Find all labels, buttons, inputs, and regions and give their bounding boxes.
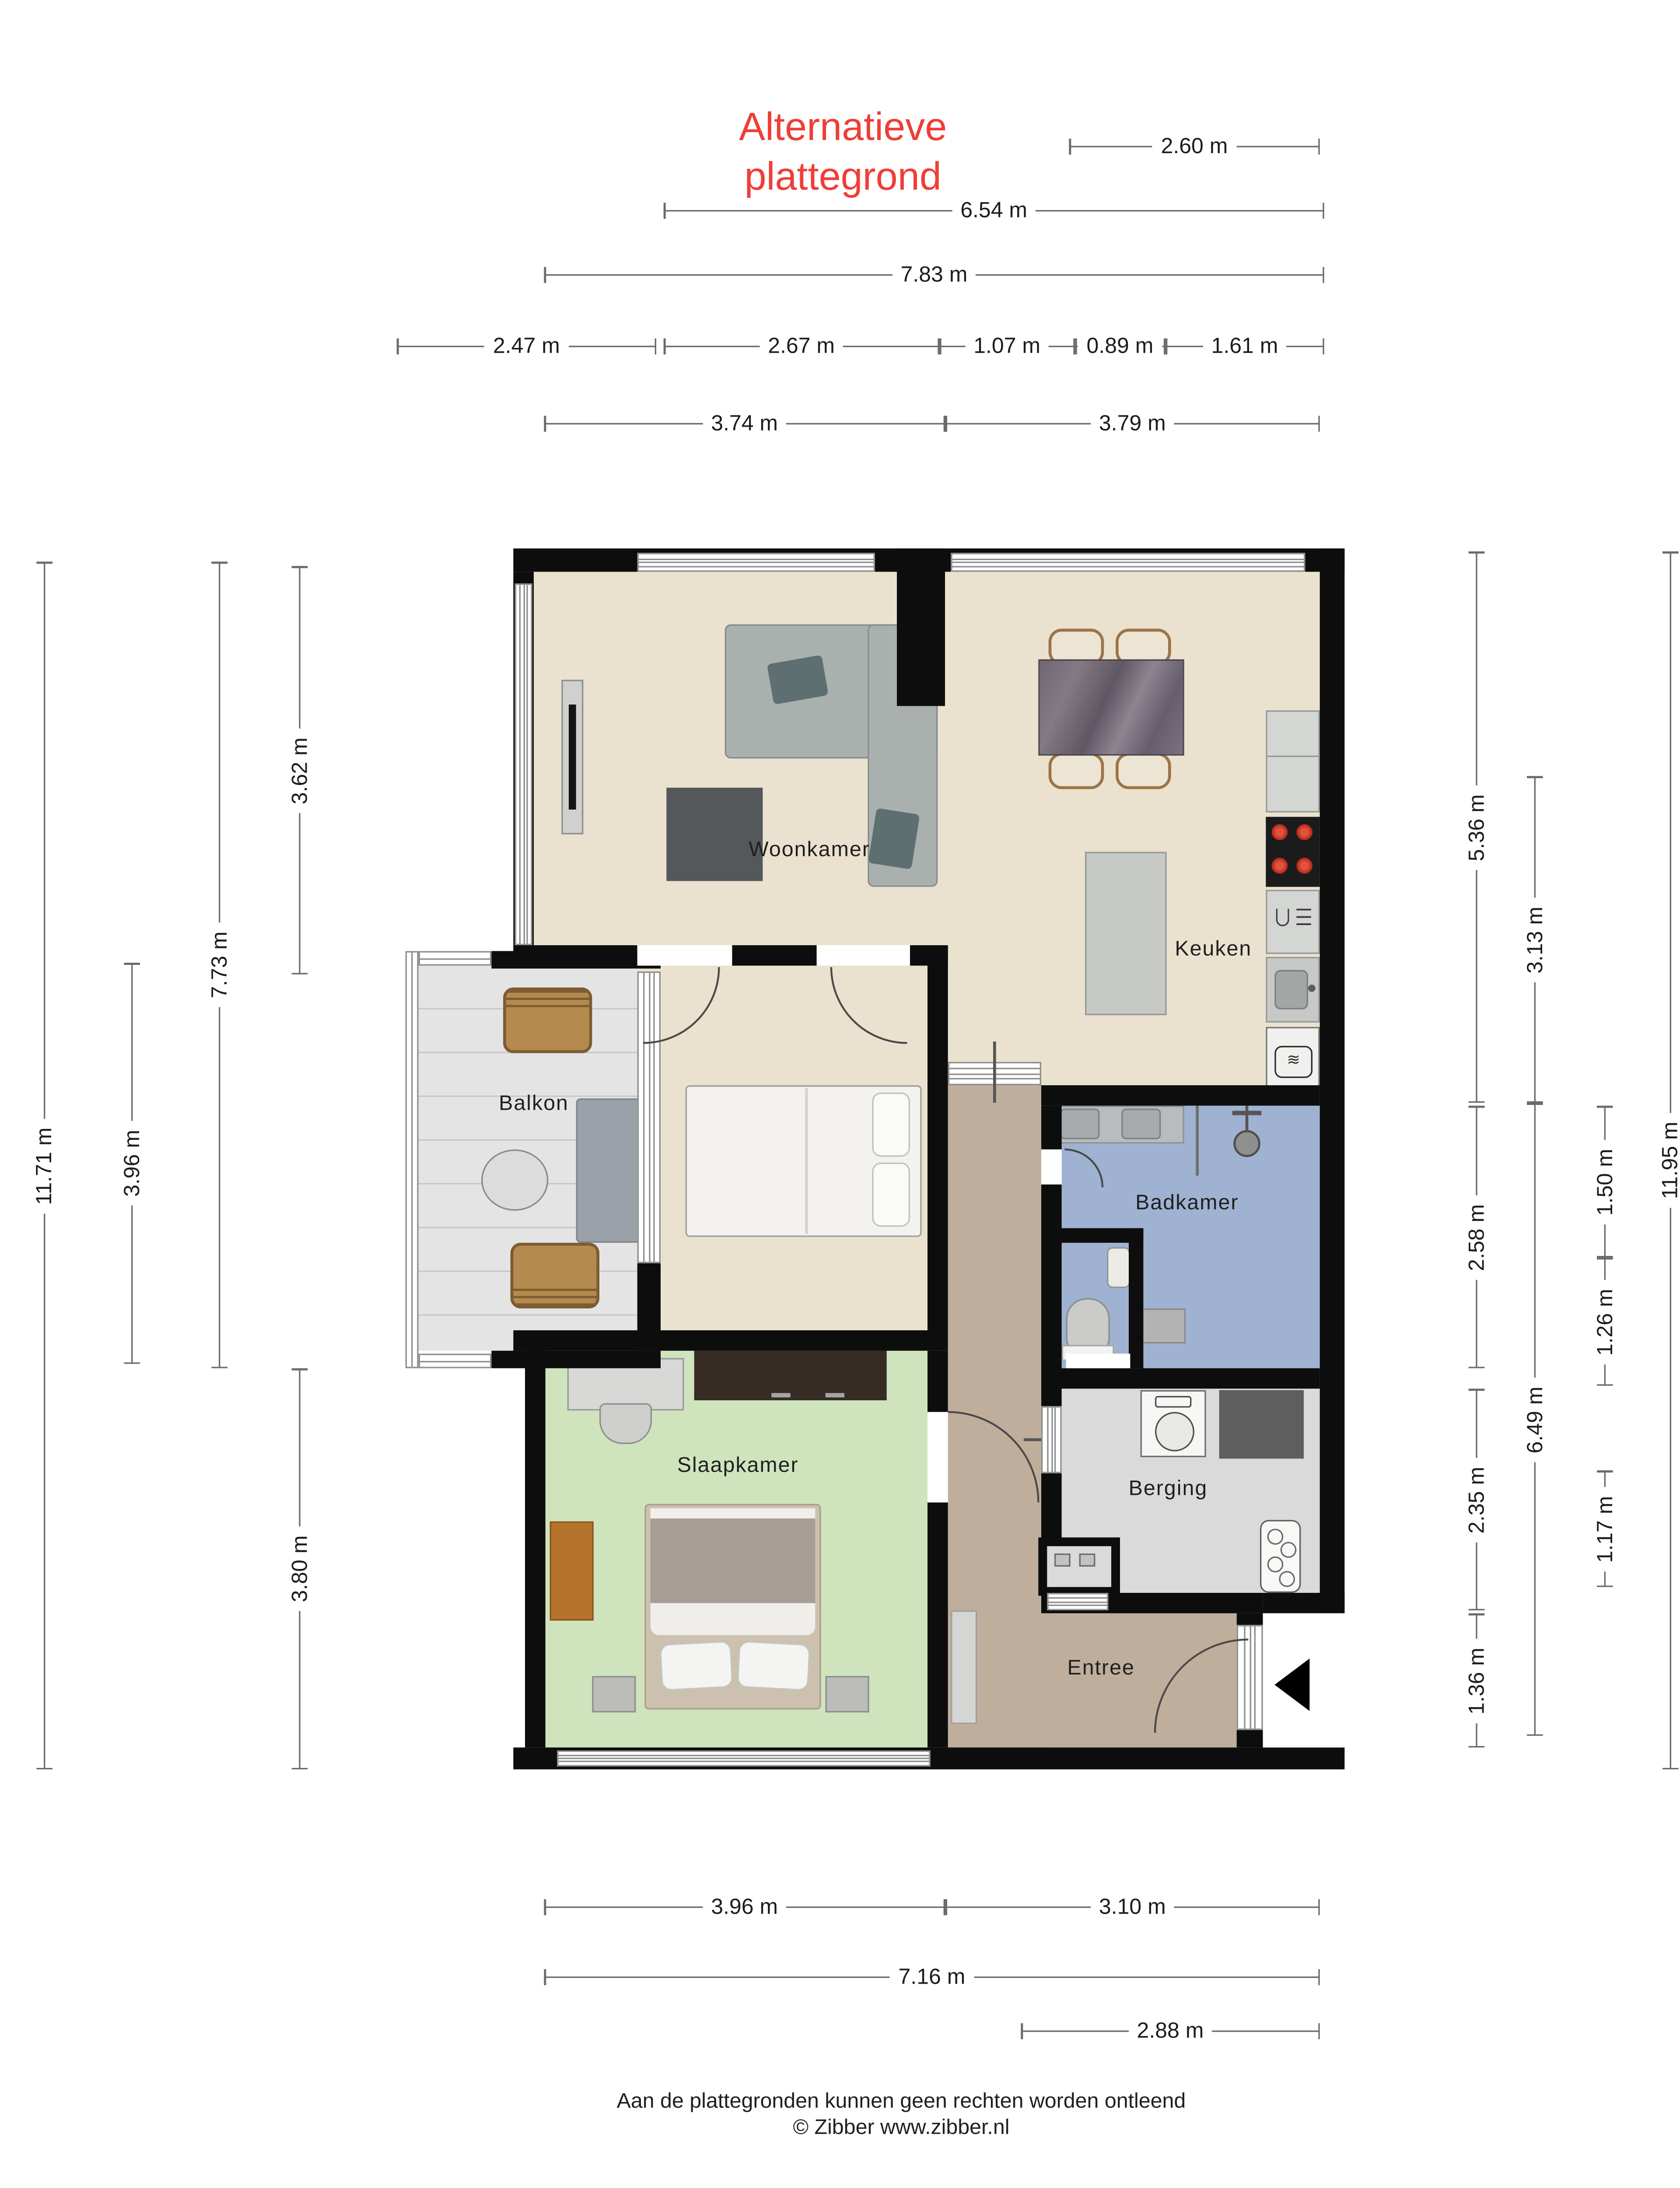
dim-top-0-89: 0.89 m xyxy=(1075,338,1165,354)
copyright-line: © Zibber www.zibber.nl xyxy=(341,2115,1461,2141)
dim-right-1-17: 1.17 m xyxy=(1597,1470,1613,1587)
wall-wc-right xyxy=(1129,1228,1143,1368)
burner xyxy=(1272,858,1288,874)
dim-right-2-58: 2.58 m xyxy=(1469,1106,1485,1368)
pillow xyxy=(872,1093,910,1157)
meterkast-door xyxy=(1047,1593,1108,1610)
dim-top-1-61: 1.61 m xyxy=(1165,338,1324,354)
bed-duvet xyxy=(651,1518,815,1606)
dining-chair xyxy=(1049,753,1104,789)
dim-top-7-83: 7.83 m xyxy=(544,267,1324,283)
balcony-railing-top xyxy=(419,951,492,965)
wardrobe-handle xyxy=(771,1393,790,1397)
balcony-chair xyxy=(503,988,592,1053)
balcony-table xyxy=(481,1150,548,1211)
door-gap-slaapkamer[interactable] xyxy=(927,1412,948,1503)
washer-panel xyxy=(1155,1396,1191,1408)
wall-wc-top xyxy=(1041,1228,1143,1243)
kitchen-sink xyxy=(1266,957,1319,1023)
wall-slaapkamer-right-a xyxy=(927,1351,948,1412)
sofa-cushion xyxy=(868,808,920,870)
window-keuken-top xyxy=(951,553,1305,572)
meterkast-inside xyxy=(1047,1546,1111,1587)
pillow xyxy=(872,1163,910,1227)
dim-left-3-80: 3.80 m xyxy=(292,1368,308,1770)
balcony-railing-left xyxy=(406,951,419,1368)
dining-table xyxy=(1038,659,1184,756)
wall-balcony-bottom xyxy=(491,1351,661,1368)
door-gap-bedroom-2[interactable] xyxy=(817,945,910,966)
toilet xyxy=(1066,1298,1110,1351)
boiler-dial xyxy=(1267,1529,1284,1545)
balcony-railing-bottom xyxy=(419,1353,492,1368)
dim-right-1-36: 1.36 m xyxy=(1469,1613,1485,1748)
burner xyxy=(1296,824,1312,840)
dim-bottom-2-88: 2.88 m xyxy=(1021,2023,1319,2039)
pillow xyxy=(659,1641,733,1691)
dim-left-7-73: 7.73 m xyxy=(211,561,227,1368)
wall-slaapkamer-top xyxy=(513,1330,948,1351)
outside-notch xyxy=(1263,1613,1345,1748)
dishwasher-fork-icon xyxy=(1296,909,1311,928)
dim-top-3-79: 3.79 m xyxy=(945,416,1320,432)
threshold-tick xyxy=(993,1041,995,1103)
guest-bed-divider xyxy=(805,1088,807,1234)
hall-cabinet xyxy=(951,1610,977,1724)
wardrobe-handle xyxy=(826,1393,844,1397)
dim-top-2-67: 2.67 m xyxy=(664,338,939,354)
dim-right-11-95: 11.95 m xyxy=(1662,551,1679,1769)
wall-slaapkamer-left xyxy=(525,1351,546,1748)
dim-top-2-47: 2.47 m xyxy=(397,338,656,354)
burner xyxy=(1296,858,1312,874)
dim-left-11-71: 11.71 m xyxy=(36,561,52,1769)
meter-icon xyxy=(1079,1553,1095,1567)
tv xyxy=(569,705,576,810)
floorplan: ≋ xyxy=(0,0,1680,2188)
label-berging: Berging xyxy=(1129,1478,1208,1501)
wall-bedroom-top-a xyxy=(513,945,637,966)
burner xyxy=(1272,824,1288,840)
dim-right-1-26: 1.26 m xyxy=(1597,1257,1613,1385)
microwave-icon: ≋ xyxy=(1274,1046,1312,1078)
boiler xyxy=(1260,1520,1301,1593)
rug xyxy=(666,788,763,881)
dim-top-2-60: 2.60 m xyxy=(1069,139,1319,155)
wall-corridor-a xyxy=(1041,1106,1062,1150)
balcony-bench-seat xyxy=(576,1098,645,1243)
disclaimer: Aan de plattegronden kunnen geen rechten… xyxy=(341,2089,1461,2141)
dim-right-1-50: 1.50 m xyxy=(1597,1106,1613,1258)
window-woonkamer-top xyxy=(637,553,875,572)
washing-machine xyxy=(1141,1390,1206,1457)
dim-right-3-13: 3.13 m xyxy=(1527,776,1543,1103)
dim-left-3-96: 3.96 m xyxy=(124,963,140,1364)
dim-bottom-3-96: 3.96 m xyxy=(544,1899,945,1915)
boiler-dial xyxy=(1279,1571,1295,1587)
wall-right xyxy=(1320,548,1345,1613)
dishwasher xyxy=(1266,890,1319,954)
dim-bottom-3-10: 3.10 m xyxy=(945,1899,1320,1915)
dim-right-5-36: 5.36 m xyxy=(1469,551,1485,1103)
wall-bedroom-right xyxy=(927,945,948,1330)
storage-cabinet xyxy=(1219,1390,1304,1459)
label-entree: Entree xyxy=(1067,1657,1134,1680)
door-gap-wc[interactable] xyxy=(1066,1353,1130,1368)
window-slaapkamer-bottom xyxy=(557,1750,930,1767)
shower-glass xyxy=(1196,1106,1199,1176)
pillow xyxy=(737,1641,811,1691)
label-woonkamer: Woonkamer xyxy=(749,839,870,862)
wall-badkamer-top xyxy=(1041,1085,1320,1106)
label-balkon: Balkon xyxy=(499,1093,569,1116)
dim-top-6-54: 6.54 m xyxy=(664,203,1324,219)
dim-left-3-62: 3.62 m xyxy=(292,566,308,974)
boiler-dial xyxy=(1267,1557,1284,1573)
dim-right-6-49: 6.49 m xyxy=(1527,1103,1543,1736)
desk-chair xyxy=(599,1403,652,1444)
wall-pillar xyxy=(897,548,945,706)
wardrobe xyxy=(694,1351,887,1400)
label-keuken: Keuken xyxy=(1175,938,1252,961)
balcony-slider xyxy=(637,971,661,1263)
wc-handbasin xyxy=(1107,1247,1130,1288)
label-slaapkamer: Slaapkamer xyxy=(677,1454,799,1477)
nightstand xyxy=(592,1676,636,1712)
threshold-tick xyxy=(1024,1438,1041,1441)
wall-bedroom-top-b xyxy=(732,945,816,966)
radiator xyxy=(1142,1308,1186,1343)
washer-drum xyxy=(1155,1412,1194,1452)
wall-frontdoor-top xyxy=(1237,1613,1263,1625)
floorplan-page: Alternatieve plattegrond xyxy=(0,0,1680,2188)
bedroom-rug xyxy=(550,1522,594,1621)
dishwasher-glass-icon xyxy=(1276,909,1289,926)
dim-right-2-35: 2.35 m xyxy=(1469,1389,1485,1610)
wall-berging-bottom-b xyxy=(1263,1593,1345,1613)
washbasin xyxy=(1121,1108,1161,1139)
bed-fold xyxy=(651,1603,815,1635)
window-woonkamer-left xyxy=(515,583,532,945)
doorway-berging[interactable] xyxy=(1041,1406,1062,1473)
wall-frontdoor-bottom xyxy=(1237,1730,1263,1747)
dim-top-1-07: 1.07 m xyxy=(939,338,1075,354)
front-door[interactable] xyxy=(1237,1625,1263,1730)
dim-top-3-74: 3.74 m xyxy=(544,416,945,432)
washbasin xyxy=(1060,1108,1099,1139)
dim-bottom-7-16: 7.16 m xyxy=(544,1969,1319,1985)
dining-chair xyxy=(1116,753,1171,789)
faucet xyxy=(1308,985,1316,992)
balcony-chair xyxy=(511,1243,599,1308)
boiler-dial xyxy=(1281,1542,1297,1558)
meter-icon xyxy=(1054,1553,1071,1567)
disclaimer-line1: Aan de plattegronden kunnen geen rechten… xyxy=(341,2089,1461,2115)
wall-badkamer-bottom xyxy=(1041,1368,1320,1389)
nightstand xyxy=(826,1676,869,1712)
cooktop xyxy=(1266,817,1319,887)
kitchen-island xyxy=(1085,852,1167,1015)
label-badkamer: Badkamer xyxy=(1135,1192,1239,1215)
door-gap-bedroom-1[interactable] xyxy=(637,945,732,966)
kitchen-tall-cabinet xyxy=(1266,710,1319,812)
wall-slaapkamer-right-b xyxy=(927,1502,948,1747)
door-gap-badkamer[interactable] xyxy=(1041,1150,1062,1185)
sink-basin xyxy=(1274,970,1308,1010)
